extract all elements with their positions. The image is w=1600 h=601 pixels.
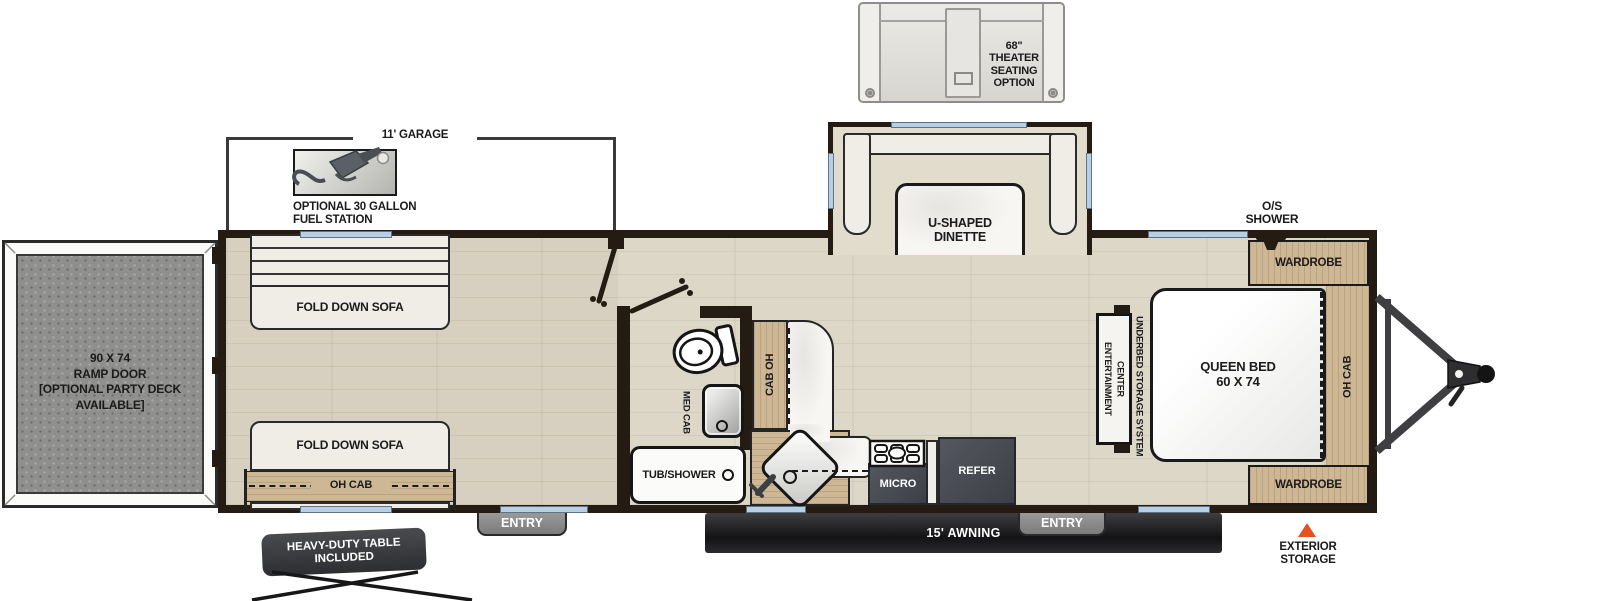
tub-drain xyxy=(722,469,734,481)
window xyxy=(500,506,588,513)
garage-dim-line xyxy=(228,137,353,140)
sofa-back-cushions xyxy=(250,234,450,287)
microwave: MICRO xyxy=(868,463,928,505)
ramp-door: 90 X 74 RAMP DOOR [OPTIONAL PARTY DECK A… xyxy=(2,240,218,508)
garage-dim-label: 11' GARAGE xyxy=(352,129,478,142)
window xyxy=(300,231,392,238)
entry-right-label: ENTRY xyxy=(1041,516,1083,530)
garage-dim-line-vertical xyxy=(226,137,229,232)
awning-label: 15' AWNING xyxy=(705,513,1222,553)
dinette-bench-back xyxy=(843,133,1077,155)
bath-wall-stub-top xyxy=(608,238,624,249)
bed-overhead-dash xyxy=(1320,292,1323,458)
wardrobe-top-label: WARDROBE xyxy=(1250,242,1367,284)
tub-shower-label: TUB/SHOWER xyxy=(642,469,715,481)
wardrobe-bottom: WARDROBE xyxy=(1248,465,1369,505)
overhead-cabinet-bedroom: OH CAB xyxy=(1326,286,1369,468)
kitchen-sink-drain xyxy=(783,470,797,484)
heavy-duty-table: HEAVY-DUTY TABLE INCLUDED xyxy=(261,527,427,576)
theater-seating: 68" THEATER SEATING OPTION xyxy=(858,2,1065,103)
kitchen-cabinet-band: CAB OH xyxy=(752,320,788,430)
ramp-door-label: 90 X 74 RAMP DOOR [OPTIONAL PARTY DECK A… xyxy=(18,351,202,413)
bolt xyxy=(865,88,875,98)
overhead-dash-vertical xyxy=(788,328,790,424)
entertainment-center: ENTERTAINMENT CENTER xyxy=(1096,313,1132,445)
trailer-hitch xyxy=(1377,297,1495,451)
tub-shower: TUB/SHOWER xyxy=(630,446,746,504)
med-cab-label: MED CAB xyxy=(680,382,691,442)
refer-label: REFER xyxy=(958,465,995,477)
cup-holder xyxy=(954,72,973,85)
garage-dim-line-vertical xyxy=(613,137,616,232)
ramp-hinge xyxy=(212,357,222,374)
window xyxy=(1148,231,1248,238)
bath-sink-drain xyxy=(716,420,728,432)
window xyxy=(300,506,392,513)
sofa-frame-post xyxy=(244,469,247,510)
awning-bar: 15' AWNING xyxy=(705,513,1222,553)
refrigerator: REFER xyxy=(938,437,1016,505)
window xyxy=(746,506,806,513)
window xyxy=(891,122,1027,128)
sofa-seat: FOLD DOWN SOFA xyxy=(250,421,450,471)
wardrobe-bottom-label: WARDROBE xyxy=(1250,467,1367,503)
sofa-frame-post xyxy=(453,469,456,510)
exterior-storage-label: EXTERIOR STORAGE xyxy=(1260,541,1356,567)
sofa-top-label: FOLD DOWN SOFA xyxy=(252,287,448,328)
wardrobe-top: WARDROBE xyxy=(1248,240,1369,286)
dinette-bench-right xyxy=(1049,133,1077,235)
table-legs xyxy=(252,572,472,600)
overhead-dash-horizontal xyxy=(792,470,868,472)
queen-bed: QUEEN BED 60 X 74 xyxy=(1150,288,1326,462)
ramp-hinge xyxy=(212,247,222,264)
micro-label: MICRO xyxy=(880,478,917,490)
theater-armrest-left xyxy=(860,4,881,101)
exterior-storage-triangle xyxy=(1298,523,1316,537)
dinette-table: U-SHAPED DINETTE xyxy=(895,183,1025,255)
entertainment-label: ENTERTAINMENT CENTER xyxy=(1099,316,1129,442)
window xyxy=(1086,153,1092,209)
fuel-station-label: OPTIONAL 30 GALLON FUEL STATION xyxy=(293,201,433,227)
oh-cab-garage-label: OH CAB xyxy=(311,479,391,491)
theater-label: 68" THEATER SEATING OPTION xyxy=(972,40,1056,89)
dinette-slideout: U-SHAPED DINETTE xyxy=(828,122,1092,255)
fold-down-sofa-top: FOLD DOWN SOFA xyxy=(250,234,450,330)
heavy-duty-table-label: HEAVY-DUTY TABLE INCLUDED xyxy=(287,537,402,568)
sofa-bottom-label: FOLD DOWN SOFA xyxy=(252,423,448,469)
queen-bed-label: QUEEN BED 60 X 74 xyxy=(1153,291,1323,459)
window xyxy=(828,153,834,209)
entry-door-left: ENTRY xyxy=(477,509,567,536)
cab-oh-kitchen-label: CAB OH xyxy=(754,322,786,428)
oh-cab-bedroom-label: OH CAB xyxy=(1326,286,1369,468)
ramp-hinge xyxy=(212,450,222,467)
sofa-seat: FOLD DOWN SOFA xyxy=(250,285,450,330)
garage-dim-line xyxy=(477,137,615,140)
bath-wall-left xyxy=(617,306,630,505)
overhead-cabinet-garage: OH CAB xyxy=(244,471,456,502)
dinette-label: U-SHAPED DINETTE xyxy=(898,186,1022,255)
entry-door-right: ENTRY xyxy=(1018,509,1106,536)
entry-left-label: ENTRY xyxy=(501,516,543,530)
fuel-station-image xyxy=(293,149,397,196)
tv-mount-top xyxy=(1114,305,1130,314)
os-shower-label: O/S SHOWER xyxy=(1222,200,1322,227)
bolt xyxy=(1048,88,1058,98)
underbed-storage-label: UNDERBED STORAGE SYSTEM xyxy=(1133,300,1144,472)
tv-mount-bottom xyxy=(1114,444,1130,453)
fold-down-sofa-bottom: FOLD DOWN SOFA OH CAB xyxy=(244,421,456,510)
window xyxy=(1138,506,1210,513)
dinette-bench-left xyxy=(843,133,871,235)
floorplan-canvas: 15' AWNING ENTRY ENTRY EXTERIOR STORAGE … xyxy=(0,0,1600,601)
